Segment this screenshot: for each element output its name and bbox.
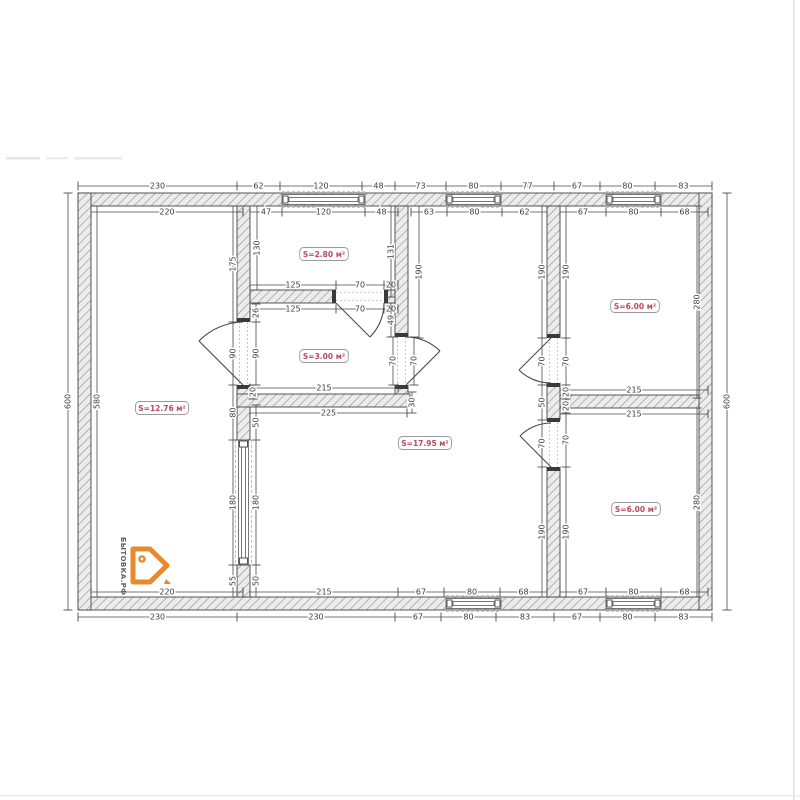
dim-label: 47 [261, 208, 271, 217]
room-area-label: S=17.95 м² [399, 437, 452, 450]
dim-chain: 190 [415, 206, 424, 338]
dim-label: 68 [679, 588, 689, 597]
room-area-label: S=2.80 м² [300, 248, 349, 261]
floor-plan-page: 2306212048738077678083220471204863806267… [0, 0, 800, 800]
dim-label: 125 [285, 281, 300, 290]
dim-chain: 215 [250, 384, 398, 393]
dim-chain: 2690 [252, 304, 261, 385]
dim-label: 20 [562, 387, 571, 397]
dim-chain: 600 [723, 193, 732, 610]
dim-label: 80 [622, 613, 632, 622]
dim-label: 230 [150, 182, 165, 191]
dim-label: 175 [229, 256, 238, 271]
dim-label: 70 [538, 438, 547, 448]
dim-label: 50 [252, 417, 261, 427]
dim-label: 80 [469, 208, 479, 217]
dim-chain: 175908018055 [229, 206, 238, 597]
dim-label: 125 [285, 305, 300, 314]
dim-label: 62 [519, 208, 529, 217]
dim-label: 67 [572, 613, 582, 622]
dim-label: 90 [252, 348, 261, 358]
dim-chain: 220 [91, 588, 243, 597]
dim-label: 67 [416, 588, 426, 597]
dim-label: 63 [424, 208, 434, 217]
dim-label: 50 [252, 576, 261, 586]
dim-label: 70 [355, 281, 365, 290]
dim-label: 83 [678, 613, 688, 622]
dim-chain: 225 [250, 409, 407, 418]
dim-chain: 215678068 [250, 588, 547, 597]
dim-label: 225 [321, 409, 336, 418]
window-interior [236, 440, 252, 565]
dim-label: 70 [389, 356, 398, 366]
dim-chain: 230230678083678083 [78, 613, 712, 622]
dim-label: 215 [626, 386, 641, 395]
dim-label: 190 [562, 524, 571, 539]
dim-label: 190 [562, 264, 571, 279]
dim-label: 80 [628, 208, 638, 217]
dim-chain: 190705070190 [538, 206, 547, 597]
dim-chain: 580 [93, 206, 102, 597]
dim-chain: 70 [410, 337, 419, 385]
room-area-text: S=6.00 м² [615, 505, 657, 514]
dim-label: 48 [376, 208, 386, 217]
dim-label: 215 [316, 588, 331, 597]
door-left-room [199, 318, 250, 389]
dim-label: 50 [538, 397, 547, 407]
dim-label: 220 [159, 588, 174, 597]
dim-chain: 600 [64, 193, 73, 610]
dim-label: 215 [626, 410, 641, 419]
dim-label: 70 [355, 305, 365, 314]
dim-label: 230 [308, 613, 323, 622]
dim-label: 180 [229, 495, 238, 510]
room-area-label: S=3.00 м² [300, 350, 349, 363]
dim-label: 26 [252, 308, 261, 318]
dim-label: 90 [229, 348, 238, 358]
dim-label: 83 [678, 182, 688, 191]
dim-chain: 638062 [411, 208, 547, 217]
dim-label: 30 [408, 397, 417, 407]
room-area-label: S=12.76 м² [136, 402, 189, 415]
dim-chain: 5018050 [252, 405, 261, 597]
dim-label: 190 [538, 264, 547, 279]
dim-chain: 130 [253, 206, 262, 290]
dim-label: 80 [463, 613, 473, 622]
dim-label: 73 [415, 182, 425, 191]
dim-chain: 678068 [560, 588, 708, 597]
dim-label: 70 [562, 435, 571, 445]
house-tag-icon [133, 549, 171, 584]
room-area-text: S=12.76 м² [138, 404, 185, 413]
dim-label: 70 [410, 356, 419, 366]
dim-label: 120 [313, 182, 328, 191]
dim-label: 49 [387, 315, 396, 325]
dim-label: 580 [93, 394, 102, 409]
dim-chain: 1257020 [250, 305, 398, 314]
dim-label: 215 [316, 384, 331, 393]
dim-label: 120 [316, 208, 331, 217]
dim-label: 55 [229, 576, 238, 586]
dim-chain: 215 [560, 386, 708, 395]
brand-logo-text: БЫТОВКА.РФ [119, 537, 127, 596]
dim-label: 67 [572, 182, 582, 191]
dim-label: 68 [679, 208, 689, 217]
dim-chain: 215 [560, 410, 708, 419]
room-area-label: S=6.00 м² [611, 300, 660, 313]
dim-label: 80 [468, 182, 478, 191]
dim-label: 77 [522, 182, 532, 191]
dim-label: 80 [628, 588, 638, 597]
dim-label: 600 [64, 394, 73, 409]
floor-plan-drawing: 2306212048738077678083220471204863806267… [0, 0, 800, 800]
dim-chain: 20 [249, 385, 258, 399]
dim-label: 70 [562, 356, 571, 366]
dim-chain: 19070202070190 [562, 206, 571, 597]
watermark-artifact [6, 157, 122, 160]
dim-label: 62 [253, 182, 263, 191]
dim-label: 67 [413, 613, 423, 622]
dim-label: 130 [253, 240, 262, 255]
room-area-text: S=17.95 м² [401, 439, 448, 448]
dim-label: 80 [467, 588, 477, 597]
dim-label: 83 [520, 613, 530, 622]
dim-label: 280 [693, 294, 702, 309]
dim-label: 67 [578, 588, 588, 597]
dim-chain: 1257020 [250, 281, 398, 290]
dim-label: 80 [622, 182, 632, 191]
room-area-label: S=6.00 м² [612, 503, 661, 516]
dim-chain: 4712048 [250, 208, 398, 217]
room-area-text: S=3.00 м² [303, 352, 345, 361]
dim-label: 280 [693, 495, 702, 510]
dim-label: 600 [723, 394, 732, 409]
dim-label: 220 [159, 208, 174, 217]
dim-label: 20 [249, 387, 258, 397]
dim-label: 131 [387, 244, 396, 259]
dim-label: 48 [373, 182, 383, 191]
room-area-text: S=2.80 м² [303, 250, 345, 259]
dim-label: 190 [415, 264, 424, 279]
dim-chain: 678068 [560, 208, 708, 217]
dim-label: 190 [538, 524, 547, 539]
dim-label: 230 [150, 613, 165, 622]
dim-chain: 220 [91, 208, 243, 217]
dim-label: 70 [538, 356, 547, 366]
dim-label: 180 [252, 495, 261, 510]
dim-chain: 2306212048738077678083 [78, 182, 712, 191]
dim-label: 68 [518, 588, 528, 597]
dim-label: 80 [229, 407, 238, 417]
dim-label: 20 [562, 401, 571, 411]
room-area-text: S=6.00 м² [614, 302, 656, 311]
dim-label: 67 [578, 208, 588, 217]
